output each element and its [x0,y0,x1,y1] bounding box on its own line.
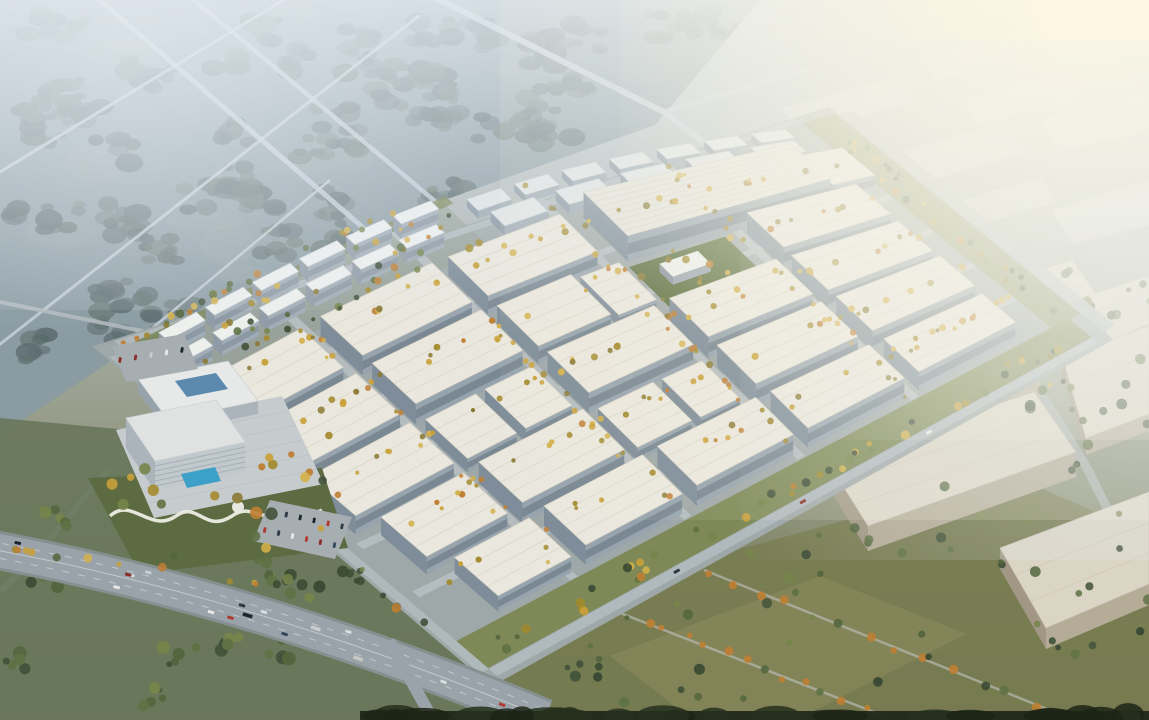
tree [157,641,170,654]
tree [470,476,475,481]
tree [117,562,122,567]
tree [227,578,233,584]
tree [837,697,846,706]
tree [522,625,531,634]
tree [981,682,990,691]
tree [458,561,463,566]
tree [377,372,382,377]
tree [53,553,61,561]
tree [546,560,550,564]
tree [171,658,179,666]
tree [157,499,166,508]
tree [398,410,404,416]
tree [14,654,26,666]
tree [1089,642,1097,650]
tree [762,598,772,608]
tree [329,353,335,359]
tree [360,567,365,572]
tree [687,633,692,638]
tree [705,571,712,578]
tree [570,671,581,682]
tree [642,566,650,574]
tree [23,547,30,554]
tree [761,665,769,673]
tree [1085,582,1093,590]
tree [786,640,792,646]
tree [264,335,270,341]
tree [283,574,294,585]
tree [440,506,444,510]
tree [729,581,737,589]
tree [158,563,167,572]
tree [476,557,482,563]
tree [304,593,314,603]
tree [258,463,265,470]
tree [311,335,315,339]
tree [232,493,243,504]
tree [265,453,273,461]
tree [596,656,603,663]
tree [576,598,585,607]
tree [576,660,583,667]
tree [637,573,646,582]
tree [891,647,897,653]
tree [593,672,602,681]
tree [374,454,379,459]
tree [624,615,629,620]
tree [300,472,310,482]
tree [502,644,511,653]
tree [515,634,520,639]
tree [430,431,435,436]
tree [588,585,595,592]
tree [84,554,93,563]
tree [15,547,22,554]
tree [127,474,134,481]
tree [674,601,681,608]
tree [253,581,258,586]
tree [250,531,260,541]
tree [708,533,716,541]
tree [420,434,426,440]
tree [353,389,359,395]
tree [565,665,571,671]
tree [495,338,499,342]
tree [834,619,843,628]
tree [646,619,655,628]
tree [335,492,342,499]
tree [3,658,10,665]
rendering-stage [0,0,1149,720]
tree [496,635,501,640]
tree [699,642,705,648]
tree [694,693,702,701]
tree [118,499,129,510]
tree [479,477,485,483]
tree [873,677,883,687]
aerial-site-rendering [0,0,1149,720]
tree [780,596,789,605]
tree [408,521,414,527]
tree [694,664,705,675]
tree [543,545,548,550]
tree [261,543,271,553]
tree [658,625,664,631]
tree [588,643,593,648]
tree [650,551,658,559]
tree [1071,650,1080,659]
tree [580,607,589,616]
tree [817,571,823,577]
tree [159,695,166,702]
tree [740,695,747,702]
tree [261,359,268,366]
tree [459,474,463,478]
tree [744,655,752,663]
tree [369,380,374,385]
tree [149,682,161,694]
tree [250,507,263,520]
tree [678,686,685,693]
tree [210,491,219,500]
tree [864,705,870,711]
tree [471,408,475,412]
tree [241,343,249,351]
tree [867,633,876,642]
tree [318,525,325,532]
tree [26,577,37,588]
tree [394,409,398,413]
tree [265,507,278,520]
tree [337,566,349,578]
tree [1034,621,1041,628]
tree [365,385,371,391]
tree [299,338,305,344]
tree [803,678,810,685]
tree [148,485,159,496]
tree [328,396,335,403]
tree [170,553,178,561]
tree [318,407,325,414]
tree [999,686,1009,696]
tree [313,581,325,593]
tree [134,336,139,341]
tree [255,341,260,346]
tree [474,483,478,487]
tree [355,471,359,475]
tree [490,509,495,514]
tree [325,432,333,440]
tree [391,603,401,613]
tree [544,527,549,532]
tree [455,490,460,495]
tree [461,338,466,343]
tree [273,580,281,588]
tree [636,558,644,566]
tree [340,399,346,405]
tree [1136,627,1144,635]
tree [925,654,932,661]
tree [418,443,423,448]
tree [619,697,629,707]
tree [595,663,603,671]
tree [318,476,327,485]
tree [623,563,632,572]
tree [918,631,925,638]
tree [810,615,815,620]
tree [434,344,441,351]
tree [446,579,452,585]
tree [693,527,699,533]
tree [434,500,439,505]
tree [725,647,734,656]
tree [1055,645,1061,651]
tree [39,506,52,519]
tree [203,359,208,364]
tree [380,593,386,599]
tree [285,588,296,599]
tree [247,366,252,371]
tree [385,449,390,454]
tree [222,639,233,650]
tree [949,665,958,674]
tree [428,353,433,358]
tree [426,359,432,365]
tree [785,572,796,583]
tree [1030,566,1041,577]
tree [1075,590,1082,597]
tree [297,579,308,590]
tree [779,676,785,682]
tree [816,688,824,696]
tree [282,652,296,666]
tree [139,463,150,474]
tree [265,649,274,658]
tree [683,609,693,619]
tree [138,700,149,711]
tree [1049,637,1056,644]
tree [288,451,294,457]
tree [51,505,60,514]
tree [192,643,201,652]
tree [354,578,360,584]
tree [420,618,428,626]
tree [300,418,307,425]
tree [61,521,71,531]
tree [792,589,799,596]
tree [321,338,326,343]
tree [107,479,118,490]
tree [325,356,329,360]
